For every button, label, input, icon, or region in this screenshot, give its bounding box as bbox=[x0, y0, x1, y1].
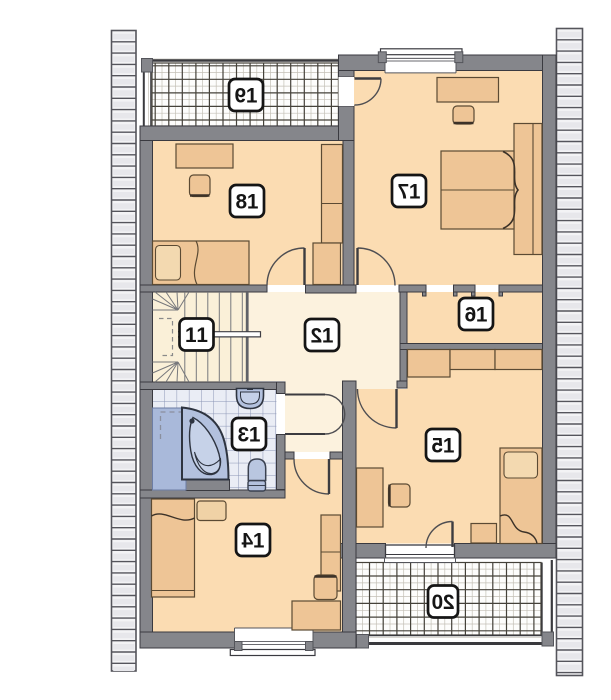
svg-text:1: 1 bbox=[443, 435, 455, 458]
svg-text:1: 1 bbox=[196, 324, 208, 347]
svg-text:1: 1 bbox=[246, 85, 258, 108]
svg-text:9: 9 bbox=[235, 85, 247, 108]
svg-text:2: 2 bbox=[443, 591, 455, 614]
svg-text:1: 1 bbox=[253, 530, 265, 553]
svg-text:4: 4 bbox=[241, 530, 253, 553]
svg-text:0: 0 bbox=[432, 591, 444, 614]
svg-text:8: 8 bbox=[236, 191, 248, 214]
svg-text:6: 6 bbox=[465, 304, 477, 327]
svg-text:1: 1 bbox=[185, 324, 197, 347]
svg-text:2: 2 bbox=[311, 325, 323, 348]
svg-text:7: 7 bbox=[398, 181, 410, 204]
svg-text:1: 1 bbox=[476, 304, 488, 327]
svg-text:1: 1 bbox=[249, 424, 261, 447]
svg-text:1: 1 bbox=[247, 191, 259, 214]
svg-text:1: 1 bbox=[409, 181, 421, 204]
svg-text:5: 5 bbox=[432, 435, 444, 458]
svg-text:1: 1 bbox=[322, 325, 334, 348]
svg-text:3: 3 bbox=[238, 424, 250, 447]
